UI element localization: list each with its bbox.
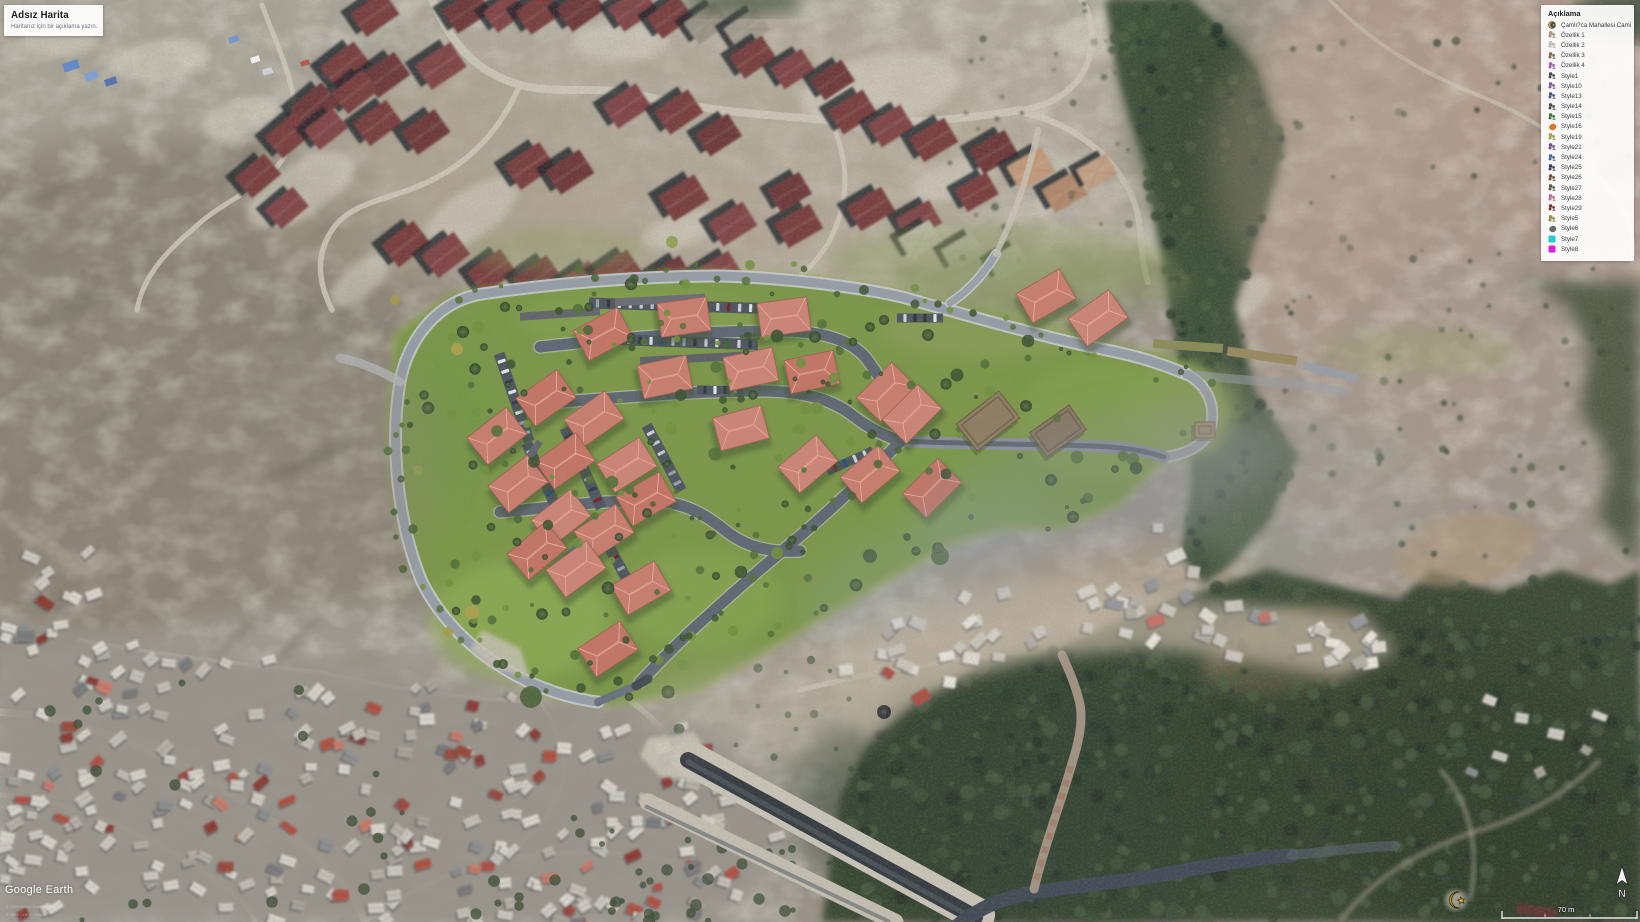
svg-text:70 m: 70 m — [1558, 905, 1575, 914]
svg-text:N: N — [1618, 888, 1626, 900]
